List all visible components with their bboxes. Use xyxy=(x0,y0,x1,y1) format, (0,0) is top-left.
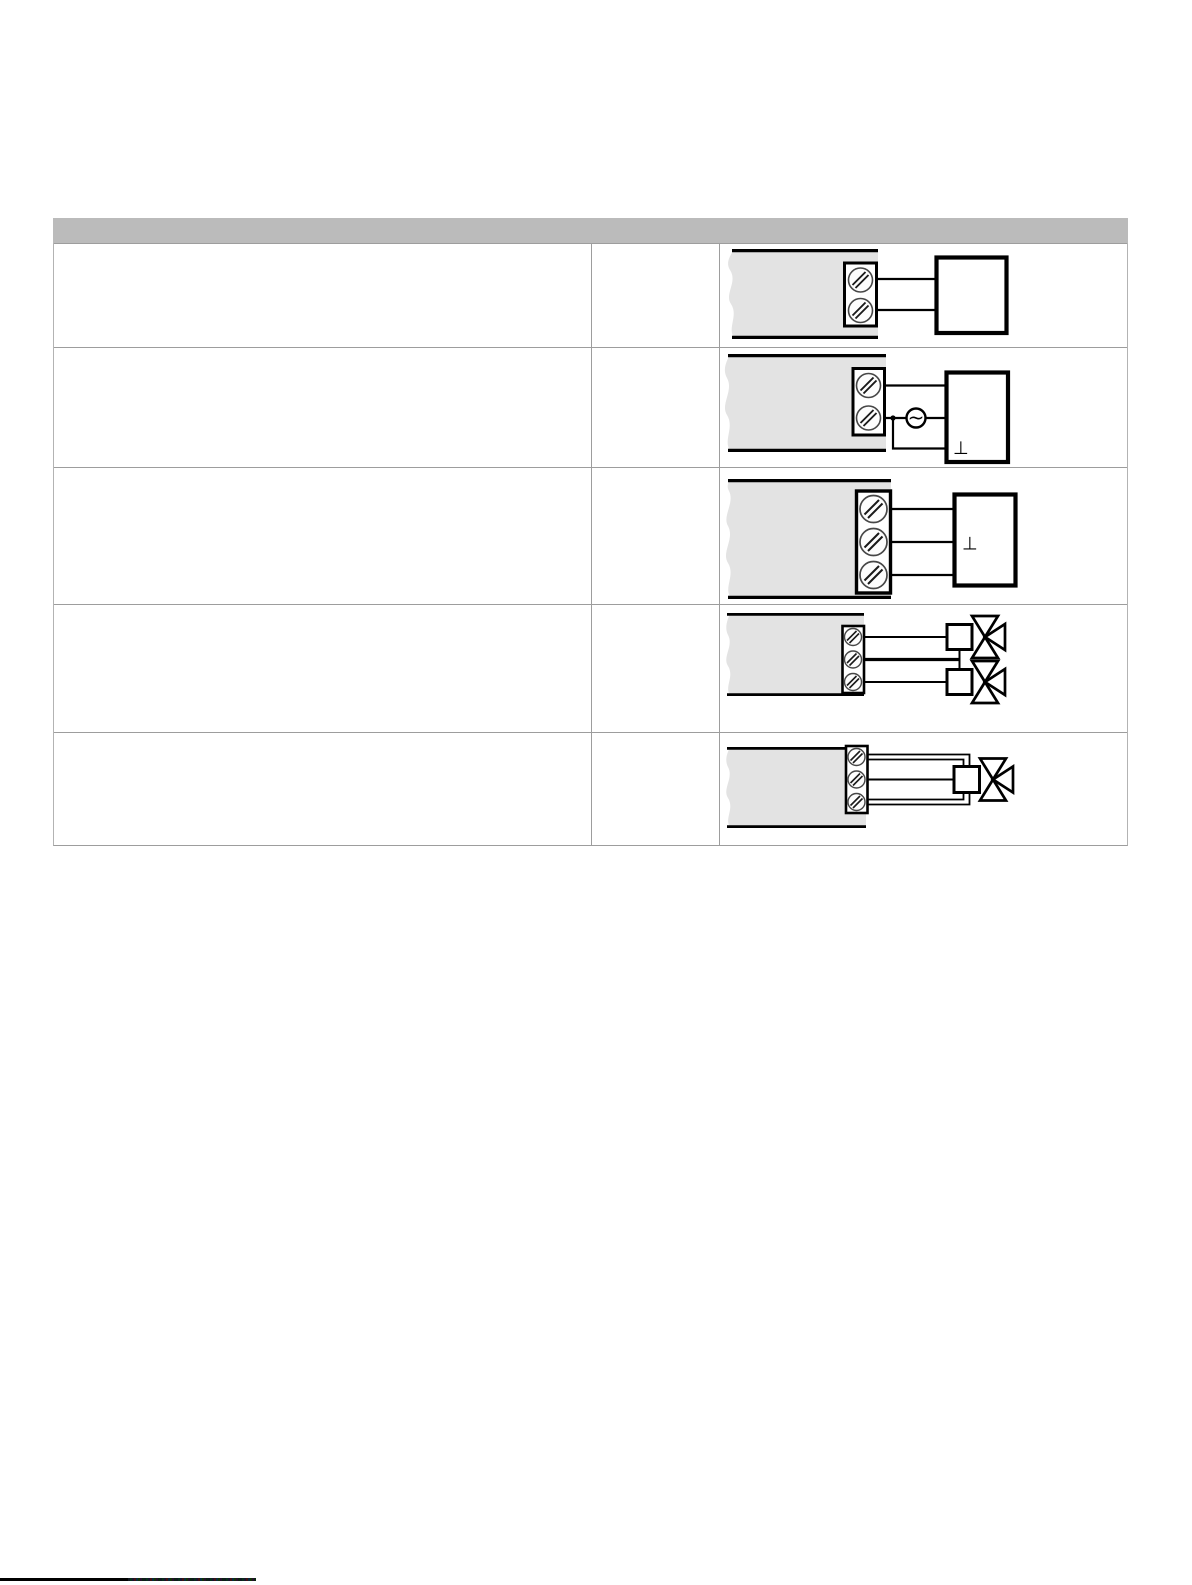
terminal-screw-icon xyxy=(860,562,887,589)
table-row xyxy=(54,243,1127,347)
wiring-diagram-ac-source-grounded-device: ~ ⊥ xyxy=(720,348,1129,466)
description-cell xyxy=(54,468,591,604)
valve-actuator-box xyxy=(947,625,972,650)
document-page: ~ ⊥ xyxy=(0,0,1192,1585)
reference-cell xyxy=(591,348,719,467)
reference-cell xyxy=(591,733,719,845)
terminal-screw-icon xyxy=(848,794,865,811)
svg-text:~: ~ xyxy=(908,406,925,430)
terminal-screw-icon xyxy=(848,749,865,766)
diagram-cell xyxy=(719,733,1129,845)
table-row: ⊥ xyxy=(54,467,1127,604)
wiring-diagram-two-valve-actuators xyxy=(720,605,1129,731)
diagram-cell xyxy=(719,244,1129,347)
terminal-screw-icon xyxy=(860,496,887,523)
three-way-valve-icon xyxy=(972,661,1005,703)
reference-cell xyxy=(591,468,719,604)
wiring-table: ~ ⊥ xyxy=(53,218,1128,846)
diagram-cell xyxy=(719,605,1129,732)
wiring-diagram-three-wire-grounded-device: ⊥ xyxy=(720,468,1129,603)
junction-dot xyxy=(890,415,895,420)
terminal-screw-icon xyxy=(845,629,862,646)
table-row xyxy=(54,604,1127,732)
terminal-screw-icon xyxy=(845,651,862,668)
table-header-bar xyxy=(53,218,1128,243)
description-cell xyxy=(54,348,591,467)
description-cell xyxy=(54,605,591,732)
device-box xyxy=(937,258,1007,334)
terminal-screw-icon xyxy=(849,268,873,292)
terminal-block xyxy=(846,746,868,813)
terminal-screw-icon xyxy=(860,529,887,556)
wire xyxy=(890,509,955,575)
valve-actuator-box xyxy=(947,670,972,695)
terminal-block xyxy=(857,491,891,593)
table-row: ~ ⊥ xyxy=(54,347,1127,467)
terminal-screw-icon xyxy=(849,299,873,323)
wire xyxy=(876,279,937,310)
footer-black-bar xyxy=(0,1578,128,1581)
wiring-diagram-single-valve-actuator xyxy=(720,733,1129,844)
reference-cell xyxy=(591,605,719,732)
description-cell xyxy=(54,244,591,347)
ground-symbol: ⊥ xyxy=(962,534,978,555)
reference-cell xyxy=(591,244,719,347)
table-body: ~ ⊥ xyxy=(53,243,1128,846)
wiring-diagram-two-terminal-device xyxy=(720,244,1129,346)
ground-symbol: ⊥ xyxy=(953,438,969,459)
ac-source-icon: ~ xyxy=(907,406,926,430)
valve-actuator-box xyxy=(954,767,980,793)
wire xyxy=(863,637,960,682)
terminal-screw-icon xyxy=(845,674,862,691)
table-row xyxy=(54,732,1127,845)
description-cell xyxy=(54,733,591,845)
three-way-valve-icon xyxy=(980,759,1013,801)
terminal-block xyxy=(853,369,885,436)
terminal-block xyxy=(845,263,877,326)
diagram-cell: ⊥ xyxy=(719,468,1129,604)
three-way-valve-icon xyxy=(972,616,1005,658)
terminal-screw-icon xyxy=(857,374,881,398)
terminal-screw-icon xyxy=(848,771,865,788)
diagram-cell: ~ ⊥ xyxy=(719,348,1129,467)
terminal-block xyxy=(843,626,865,693)
terminal-screw-icon xyxy=(857,406,881,430)
footer-noise-strip xyxy=(128,1578,256,1581)
